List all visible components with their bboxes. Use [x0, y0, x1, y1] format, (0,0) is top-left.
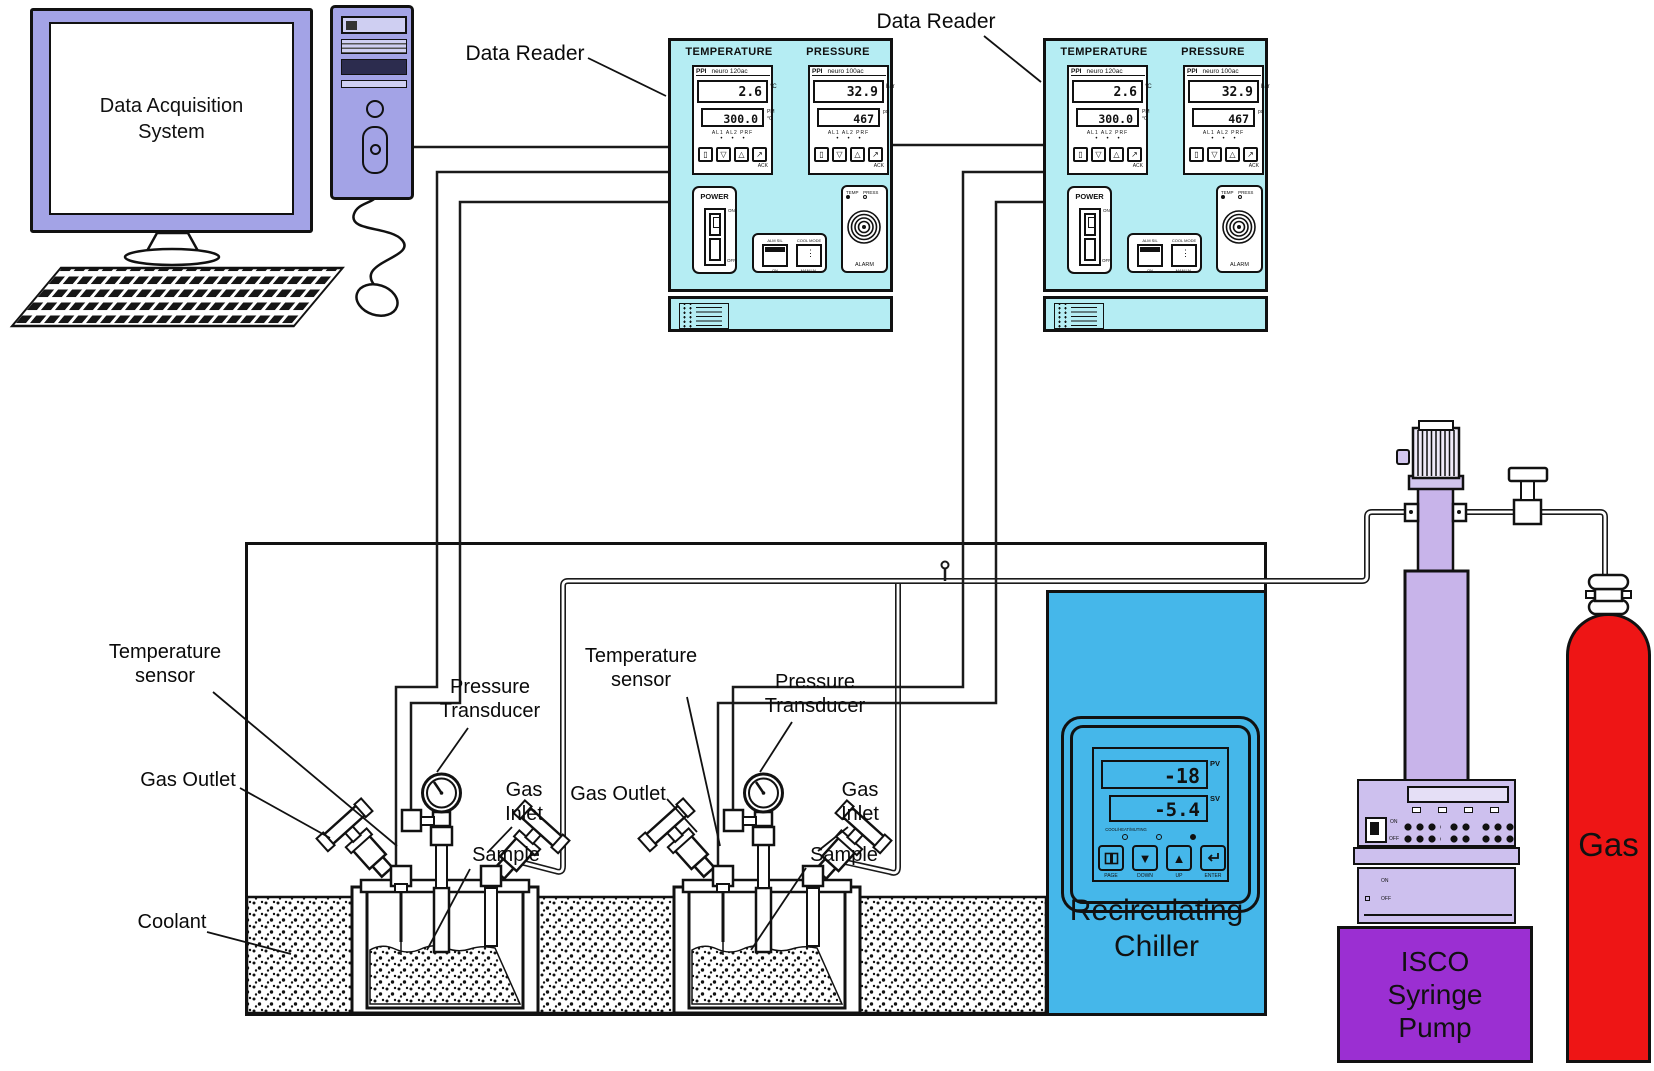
alarm-box: TEMP PRESS ALARM — [1216, 185, 1263, 273]
sample-2-label: Sample — [810, 844, 878, 868]
page-button: ▯ — [698, 147, 713, 162]
temp-alarm-led-icon — [846, 195, 850, 199]
monitor-screen: Data Acquisition System — [49, 22, 294, 215]
heat-led-icon — [1156, 834, 1162, 840]
temperature-controller: PPIneuro 120ac 2.6 °C 300.0 PM °C AL1 AL… — [692, 65, 773, 175]
syringe-pump-column — [1397, 421, 1468, 783]
brand: PPI — [1187, 68, 1197, 75]
ack-label: ACK — [758, 163, 768, 169]
pump-display-window — [1407, 786, 1509, 803]
recirculating-chiller: -18 PV -5.4 SV COOL/HEAT/MUTING ▼ ▲ — [1046, 590, 1267, 1016]
module-button-icon — [1365, 896, 1370, 901]
tower-badge — [362, 126, 388, 174]
gas-outlet-2-label: Gas Outlet — [570, 783, 666, 807]
on-label: ON — [1103, 208, 1110, 213]
drive-button-icon — [346, 21, 357, 30]
cd-tray — [341, 80, 407, 88]
model: neuro 100ac — [1202, 68, 1238, 75]
chiller-display-bezel: -18 PV -5.4 SV COOL/HEAT/MUTING ▼ ▲ — [1061, 716, 1260, 913]
alm-sil-button — [762, 244, 788, 267]
enter-arrow-icon — [1206, 851, 1221, 865]
alarm-led-dots: ••• — [810, 136, 887, 142]
alm-sil-button — [1137, 244, 1163, 267]
pump-keypad — [1401, 819, 1441, 845]
model: neuro 120ac — [1086, 68, 1122, 75]
brand: PPI — [696, 68, 706, 75]
mouse — [352, 194, 404, 321]
indicator-window-icon — [1490, 807, 1499, 813]
temperature-sensor-2-label: Temperature sensor — [585, 645, 697, 692]
mode-buttons-box: ALM SIL COOL MODE ON MANUAL — [752, 233, 827, 273]
power-box: POWER ON OFF — [692, 186, 737, 274]
ack-button: ↗ — [1243, 147, 1258, 162]
enter-caption: ENTER — [1200, 873, 1226, 879]
press-sv-display: 467 — [817, 108, 880, 127]
on-label: ON — [728, 208, 735, 213]
page-button: ▯ — [1073, 147, 1088, 162]
data-reader-panel-1: TEMPERATURE PRESSURE PPIneuro 120ac 2.6 … — [668, 38, 893, 292]
ack-label: ACK — [1133, 163, 1143, 169]
drive-bay — [341, 16, 407, 34]
pump-controller-base — [1353, 847, 1520, 865]
isco-syringe-pump: ISCO Syringe Pump — [1337, 926, 1533, 1063]
pump-lower-module: ON OFF — [1357, 867, 1516, 924]
temp-sv-display: 300.0 — [701, 108, 764, 127]
temp-sv-units: PM °C — [767, 109, 775, 122]
data-reader-panel-2: TEMPERATURE PRESSURE PPIneuro 120ac 2.6 … — [1043, 38, 1268, 292]
on-caption: ON — [1135, 268, 1165, 273]
ack-button: ↗ — [1127, 147, 1142, 162]
temperature-sensor-1-label: Temperature sensor — [109, 641, 221, 688]
alarm-led-dots: ••• — [1069, 136, 1146, 142]
up-button: ▲ — [1166, 845, 1192, 871]
alm-sil-label: ALM SIL — [1135, 238, 1165, 243]
up-button: △ — [734, 147, 749, 162]
disk-slot — [341, 59, 407, 75]
module-off-label: OFF — [1381, 896, 1391, 902]
press-sv-display: 467 — [1192, 108, 1255, 127]
power-box: POWER ON OFF — [1067, 186, 1112, 274]
press-pv-display: 32.9 — [813, 80, 884, 103]
down-button: ▽ — [1091, 147, 1106, 162]
terminal-block — [679, 303, 729, 329]
terminal-block — [1054, 303, 1104, 329]
keyboard — [12, 268, 343, 326]
pressure-title: PRESSURE — [1158, 46, 1268, 58]
vent-slots — [341, 39, 407, 54]
coolant-label: Coolant — [138, 911, 207, 935]
page-caption: PAGE — [1098, 873, 1124, 879]
manual-caption: MANUAL — [794, 268, 824, 273]
mode-buttons-box: ALM SIL COOL MODE ON MANUAL — [1127, 233, 1202, 273]
pump-power-switch — [1365, 817, 1387, 843]
up-button: △ — [1225, 147, 1240, 162]
alm-sil-label: ALM SIL — [760, 238, 790, 243]
pump-on-label: ON — [1390, 819, 1398, 825]
mouse-cable — [353, 194, 404, 287]
power-button-icon — [366, 100, 384, 118]
temp-sv-display: 300.0 — [1076, 108, 1139, 127]
press-alarm-led-icon — [863, 195, 867, 199]
press-pv-display: 32.9 — [1188, 80, 1259, 103]
down-arrow-icon: ▼ — [1139, 851, 1152, 866]
press-sv-unit: psi — [883, 109, 889, 116]
cool-mode-label: COOL MODE — [1169, 238, 1199, 243]
temp-alarm-label: TEMP — [1221, 190, 1238, 200]
pressure-transducer-1-label: Pressure Transducer — [440, 676, 540, 723]
press-sv-unit: psi — [1258, 109, 1264, 116]
down-button: ▼ — [1132, 845, 1158, 871]
temperature-controller: PPIneuro 120ac 2.6 °C 300.0 PM °C AL1 AL… — [1067, 65, 1148, 175]
press-alarm-label: PRESS — [863, 190, 883, 200]
model: neuro 120ac — [711, 68, 747, 75]
temp-pv-display: 2.6 — [697, 80, 768, 103]
temperature-title: TEMPERATURE — [1048, 46, 1160, 58]
pressure-title: PRESSURE — [783, 46, 893, 58]
monitor-stand — [125, 233, 219, 265]
data-reader-2-label: Data Reader — [876, 10, 995, 35]
book-icon — [1104, 852, 1119, 865]
temp-sv-units: PM °C — [1142, 109, 1150, 122]
temperature-title: TEMPERATURE — [673, 46, 785, 58]
pump-controller: ON OFF — [1357, 779, 1516, 847]
module-on-label: ON — [1381, 878, 1389, 884]
pump-keypad — [1447, 819, 1474, 845]
up-caption: UP — [1166, 873, 1192, 879]
gas-cylinder: Gas — [1566, 613, 1651, 1063]
temp-pv-unit: °C — [1145, 84, 1152, 90]
down-button: ▽ — [716, 147, 731, 162]
press-pv-unit: bar — [886, 84, 895, 90]
alarm-speaker-icon — [1218, 203, 1260, 249]
chiller-control-panel: -18 PV -5.4 SV COOL/HEAT/MUTING ▼ ▲ — [1092, 747, 1229, 882]
off-label: OFF — [727, 258, 736, 263]
temp-pv-display: 2.6 — [1072, 80, 1143, 103]
ack-label: ACK — [874, 163, 884, 169]
power-label: POWER — [694, 192, 735, 201]
data-reader-1-terminal-strip — [668, 296, 893, 332]
pump-off-label: OFF — [1389, 836, 1399, 842]
page-button: ▯ — [814, 147, 829, 162]
down-button: ▽ — [832, 147, 847, 162]
pressure-controller: PPIneuro 100ac 32.9 bar 467 psi AL1 AL2 … — [808, 65, 889, 175]
data-acquisition-label: Data Acquisition System — [100, 93, 243, 145]
cool-mode-label: COOL MODE — [794, 238, 824, 243]
chiller-name-label: Recirculating Chiller — [1049, 893, 1264, 965]
temp-cable-1 — [396, 172, 670, 872]
model: neuro 100ac — [827, 68, 863, 75]
gas-label: Gas — [1569, 826, 1648, 864]
ack-label: ACK — [1249, 163, 1259, 169]
alarm-speaker-icon — [843, 203, 885, 249]
switch-knob-icon — [1370, 822, 1379, 835]
sv-label: SV — [1210, 794, 1220, 803]
data-reader-1-label: Data Reader — [465, 42, 584, 67]
mute-led-icon — [1190, 834, 1196, 840]
down-button: ▽ — [1207, 147, 1222, 162]
temp-alarm-label: TEMP — [846, 190, 863, 200]
data-reader-2-terminal-strip — [1043, 296, 1268, 332]
brand: PPI — [812, 68, 822, 75]
chiller-sv-display: -5.4 — [1109, 795, 1208, 822]
indicator-window-icon — [1412, 807, 1421, 813]
indicator-window-icon — [1438, 807, 1447, 813]
gas-inlet-1-label: Gas Inlet — [505, 779, 543, 826]
gas-line-valve — [1509, 468, 1547, 524]
tee-fitting-icon — [942, 562, 949, 569]
monitor: Data Acquisition System — [30, 8, 313, 233]
ack-button: ↗ — [752, 147, 767, 162]
gas-outlet-1-label: Gas Outlet — [140, 769, 236, 793]
pump-keypad — [1479, 819, 1517, 845]
up-arrow-icon: ▲ — [1173, 851, 1186, 866]
tower-badge-dot-icon — [370, 144, 381, 155]
on-caption: ON — [760, 268, 790, 273]
page-button — [1098, 845, 1124, 871]
isco-pump-label: ISCO Syringe Pump — [1388, 945, 1483, 1044]
chiller-pv-display: -18 — [1101, 760, 1208, 789]
temp-alarm-led-icon — [1221, 195, 1225, 199]
indicator-window-icon — [1464, 807, 1473, 813]
power-switch — [704, 208, 726, 266]
pressure-controller: PPIneuro 100ac 32.9 bar 467 psi AL1 AL2 … — [1183, 65, 1264, 175]
off-label: OFF — [1102, 258, 1111, 263]
temp-pv-unit: °C — [770, 84, 777, 90]
pv-label: PV — [1210, 759, 1220, 768]
up-button: △ — [1109, 147, 1124, 162]
alarm-label: ALARM — [1218, 262, 1261, 268]
experimental-setup-figure: Data Acquisition System TEMPERATURE PRES… — [0, 0, 1654, 1071]
pressure-transducer-2-label: Pressure Transducer — [765, 671, 865, 718]
cool-led-icon — [1122, 834, 1128, 840]
power-switch — [1079, 208, 1101, 266]
power-label: POWER — [1069, 192, 1110, 201]
brand: PPI — [1071, 68, 1081, 75]
alarm-led-dots: ••• — [1185, 136, 1262, 142]
press-alarm-label: PRESS — [1238, 190, 1258, 200]
up-button: △ — [850, 147, 865, 162]
alarm-label: ALARM — [843, 262, 886, 268]
sample-1-label: Sample — [472, 844, 540, 868]
module-seam — [1364, 914, 1512, 916]
page-button: ▯ — [1189, 147, 1204, 162]
alarm-led-dots: ••• — [694, 136, 771, 142]
gas-inlet-2-label: Gas Inlet — [841, 779, 879, 826]
led-caption: COOL/HEAT/MUTING — [1102, 827, 1150, 832]
alarm-box: TEMP PRESS ALARM — [841, 185, 888, 273]
cool-mode-button — [796, 244, 822, 267]
manual-caption: MANUAL — [1169, 268, 1199, 273]
press-pv-unit: bar — [1261, 84, 1270, 90]
cool-mode-button — [1171, 244, 1197, 267]
gas-cylinder-neck — [1586, 575, 1631, 614]
down-caption: DOWN — [1132, 873, 1158, 879]
ack-button: ↗ — [868, 147, 883, 162]
press-alarm-led-icon — [1238, 195, 1242, 199]
computer-tower — [330, 5, 414, 200]
enter-button — [1200, 845, 1226, 871]
